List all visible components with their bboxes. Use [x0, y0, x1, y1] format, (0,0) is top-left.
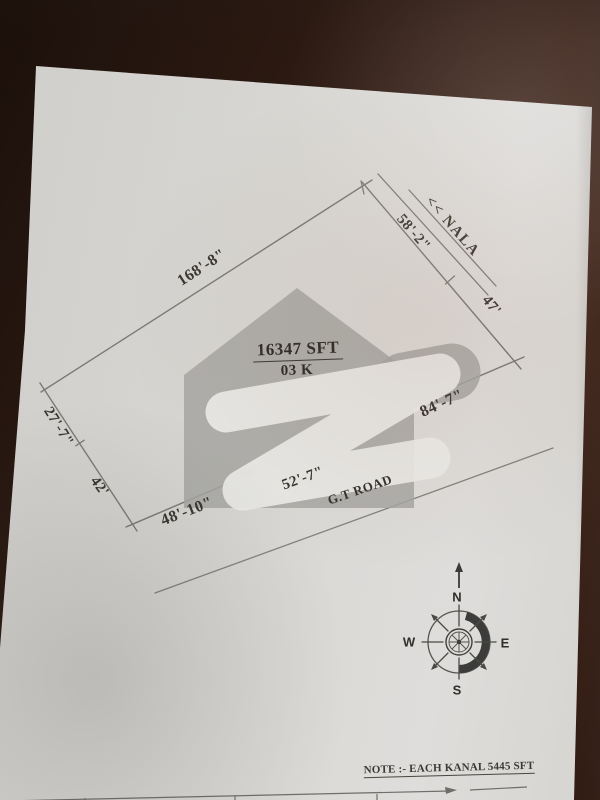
plot-area-label: 16347 SFT: [252, 337, 343, 362]
north-arrow-icon: [455, 562, 463, 588]
compass-east-label: E: [501, 636, 510, 651]
photo-of-site-plan: 168'-8" 58'-2" 47' << NALA 27'-7" 42' 48…: [0, 0, 600, 800]
compass-rose-icon: [422, 562, 496, 679]
compass-north-label: N: [452, 590, 461, 605]
nala-channel-lines: [378, 174, 496, 295]
bottom-table-lines: [5, 787, 527, 800]
compass-south-label: S: [453, 683, 462, 698]
plot-kanal-label: 03 K: [281, 362, 314, 380]
site-plan-drawing: [0, 0, 600, 800]
compass-west-label: W: [403, 635, 415, 650]
